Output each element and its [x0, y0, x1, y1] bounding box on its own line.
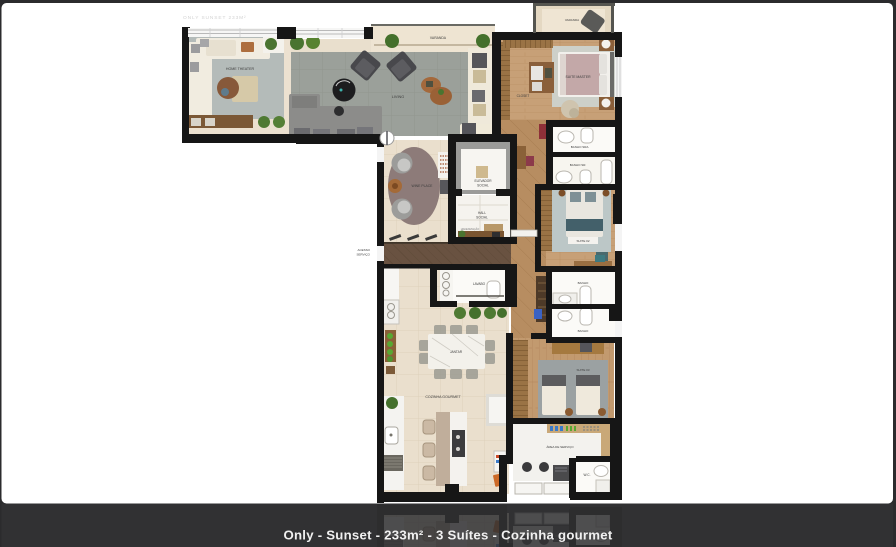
svg-text:Only - Sunset - 233m² - 3 Suít: Only - Sunset - 233m² - 3 Suítes - Cozin… — [283, 528, 612, 543]
